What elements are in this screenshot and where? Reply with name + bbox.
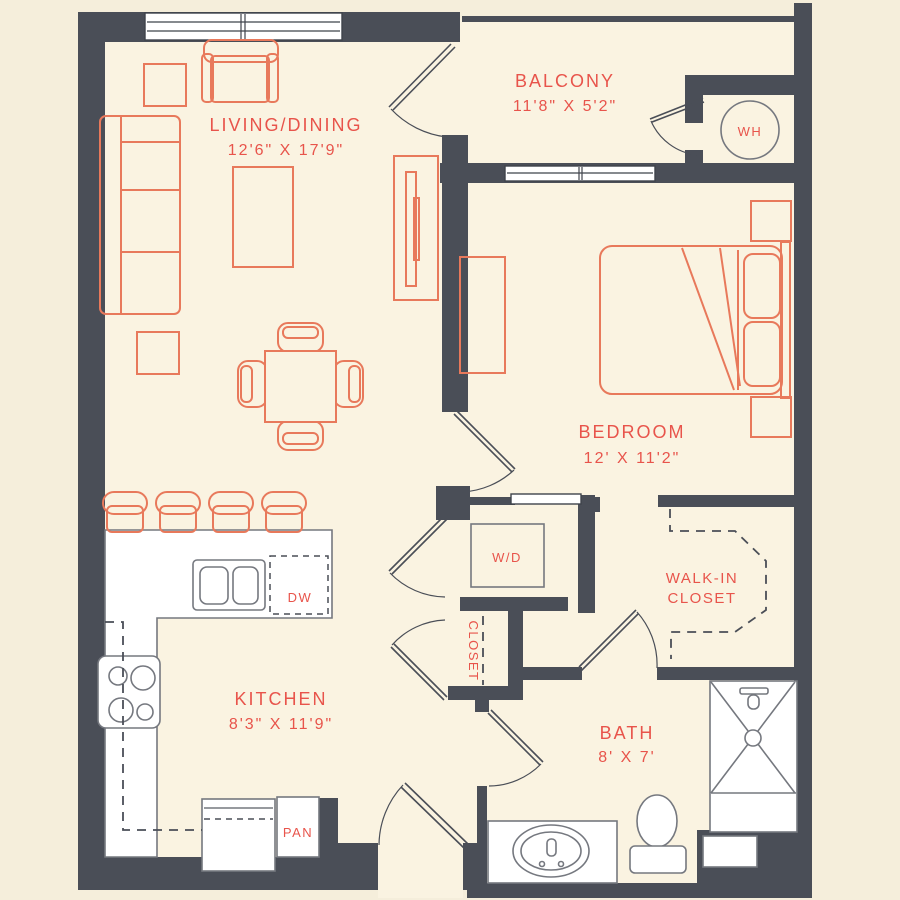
bedroom-label: BEDROOM bbox=[578, 422, 685, 442]
stove bbox=[98, 656, 160, 728]
balcony-label: BALCONY bbox=[515, 71, 615, 91]
dining-table bbox=[265, 351, 336, 422]
shower bbox=[710, 681, 797, 832]
wall-segment bbox=[458, 497, 515, 505]
bedroom-window bbox=[505, 166, 655, 181]
wall-segment bbox=[685, 150, 703, 164]
kitchen-label: KITCHEN bbox=[234, 689, 327, 709]
refrigerator bbox=[202, 799, 275, 871]
washer-dryer-label: W/D bbox=[492, 550, 522, 565]
floor-plan: LIVING/DINING 12'6" X 17'9" BALCONY 11'8… bbox=[0, 0, 900, 900]
living-room-label: LIVING/DINING bbox=[209, 115, 362, 135]
bath-label: BATH bbox=[600, 723, 655, 743]
shower-drain bbox=[745, 730, 761, 746]
bath-dims: 8' X 7' bbox=[598, 749, 655, 766]
floor-plan-drawing: LIVING/DINING 12'6" X 17'9" BALCONY 11'8… bbox=[0, 0, 900, 900]
balcony-railing bbox=[462, 16, 794, 22]
pillow bbox=[744, 322, 780, 386]
living-room-window bbox=[145, 13, 342, 40]
wall-segment bbox=[475, 698, 489, 712]
wall-segment bbox=[338, 843, 378, 890]
wall-segment bbox=[578, 495, 595, 613]
wall-segment bbox=[442, 135, 468, 412]
wall-segment bbox=[657, 667, 794, 680]
wall-segment bbox=[463, 843, 487, 890]
shower-head bbox=[740, 688, 768, 694]
entry-threshold-floor bbox=[378, 845, 463, 898]
walk-in-closet-label-line2: CLOSET bbox=[667, 590, 736, 607]
walk-in-closet-label-line1: WALK-IN bbox=[666, 570, 738, 587]
wd-pocket-door bbox=[511, 494, 581, 504]
bedroom-dims: 12' X 11'2" bbox=[584, 450, 681, 467]
wall-segment bbox=[658, 495, 794, 507]
wall-segment bbox=[523, 667, 582, 680]
wall-segment bbox=[477, 786, 487, 847]
wall-segment bbox=[460, 597, 568, 611]
wall-segment bbox=[448, 686, 523, 700]
kitchen-dims: 8'3" X 11'9" bbox=[229, 716, 333, 733]
balcony-dims: 11'8" X 5'2" bbox=[513, 98, 617, 115]
water-heater-label: WH bbox=[738, 124, 763, 139]
closet-label: CLOSET bbox=[466, 620, 481, 681]
vanity bbox=[488, 821, 617, 883]
wall-segment bbox=[318, 798, 338, 857]
linen-niche bbox=[703, 836, 757, 867]
pillow bbox=[744, 254, 780, 318]
pantry-label: PAN bbox=[283, 825, 313, 840]
wall-segment bbox=[685, 75, 794, 95]
living-room-dims: 12'6" X 17'9" bbox=[228, 142, 344, 159]
dishwasher-label: DW bbox=[288, 590, 313, 605]
